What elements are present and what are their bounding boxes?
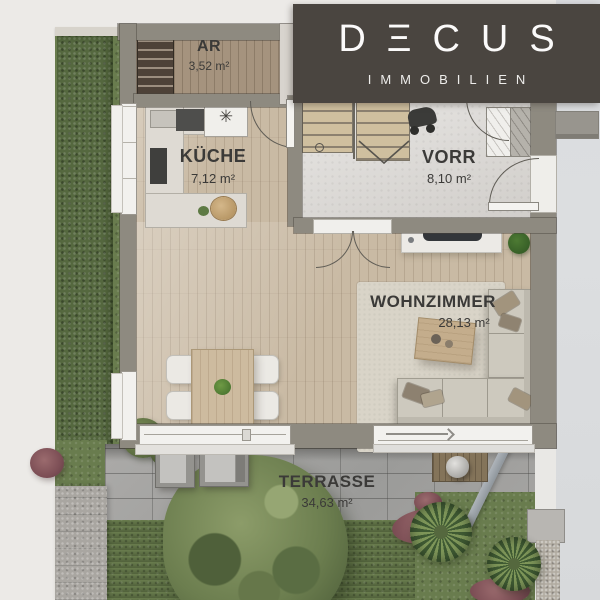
concrete-pad xyxy=(528,510,564,542)
room-label-kueche: KÜCHE 7,12 m² xyxy=(180,146,247,186)
room-name: TERRASSE xyxy=(279,472,376,492)
window-outer-sill xyxy=(374,445,534,452)
stove-burner-icon: ✳ xyxy=(219,107,233,127)
lounge-chair-armrest xyxy=(236,452,245,482)
corner-plant xyxy=(508,232,530,254)
room-area: 8,10 m² xyxy=(422,171,476,186)
decor-boulder xyxy=(446,456,469,478)
stroller-wheel xyxy=(426,124,435,133)
lounge-chair-cushion xyxy=(160,455,186,483)
floor-plan: ✳ xyxy=(0,0,600,600)
brand-logo-text: DΞCUS xyxy=(317,20,575,58)
window-dining-bottom xyxy=(140,426,290,445)
railing-post-icon xyxy=(315,143,324,152)
cutting-board xyxy=(211,197,236,220)
slide-direction-arrow xyxy=(386,433,448,435)
room-label-terrasse: TERRASSE 34,63 m² xyxy=(279,472,376,510)
stroller-wheel xyxy=(410,126,419,135)
stairs-direction-arrow xyxy=(356,138,412,168)
dining-chair xyxy=(249,392,278,419)
entrance-canopy xyxy=(556,112,598,138)
table-decor xyxy=(431,334,441,344)
room-label-ar: AR 3,52 m² xyxy=(189,38,230,73)
window-mullion xyxy=(144,434,286,435)
entrance-door-leaf xyxy=(489,203,538,210)
brand-subtitle: IMMOBILIEN xyxy=(359,72,535,87)
walkway-left xyxy=(0,0,55,600)
sliding-door-track xyxy=(378,440,528,441)
stairs-handrail xyxy=(353,101,355,159)
kitchen-appliance xyxy=(176,109,206,131)
room-label-vorr: VORR 8,10 m² xyxy=(422,147,476,186)
kitchen-cooktop xyxy=(150,148,167,184)
room-label-wohnzimmer: WOHNZIMMER 28,13 m² xyxy=(370,292,496,330)
kitchen-sink xyxy=(150,110,177,128)
room-area: 34,63 m² xyxy=(279,495,376,510)
dining-chair xyxy=(249,356,278,383)
tv-screen xyxy=(423,232,482,241)
table-plant xyxy=(214,379,231,395)
window-dining-left xyxy=(122,372,136,440)
flower-bush xyxy=(30,448,64,478)
room-area: 7,12 m² xyxy=(180,171,247,186)
window-handle xyxy=(243,430,250,440)
room-name: WOHNZIMMER xyxy=(370,292,496,312)
door-leaf-kitchen xyxy=(287,100,294,147)
window-sill xyxy=(112,374,122,438)
wall-right xyxy=(531,96,556,448)
garden-wall xyxy=(55,486,107,600)
storage-shelf xyxy=(138,36,173,96)
wall-ar-stair xyxy=(280,24,294,104)
room-name: AR xyxy=(189,38,230,56)
counter-plant xyxy=(198,206,209,216)
tv-speaker xyxy=(408,237,414,243)
room-name: VORR xyxy=(422,147,476,168)
window-outer-sill xyxy=(136,445,294,454)
room-area: 28,13 m² xyxy=(432,315,496,330)
room-area: 3,52 m² xyxy=(189,59,230,73)
palm-plant xyxy=(410,502,472,562)
window-kitchen-left xyxy=(122,104,136,214)
stairs-flight xyxy=(303,100,352,152)
window-sill xyxy=(112,106,122,212)
room-name: KÜCHE xyxy=(180,146,247,167)
brand-banner: DΞCUS IMMOBILIEN xyxy=(293,4,600,103)
palm-plant xyxy=(487,537,541,591)
table-decor xyxy=(445,340,453,348)
hedge-left xyxy=(57,36,113,444)
lounge-chair-cushion xyxy=(205,452,235,482)
